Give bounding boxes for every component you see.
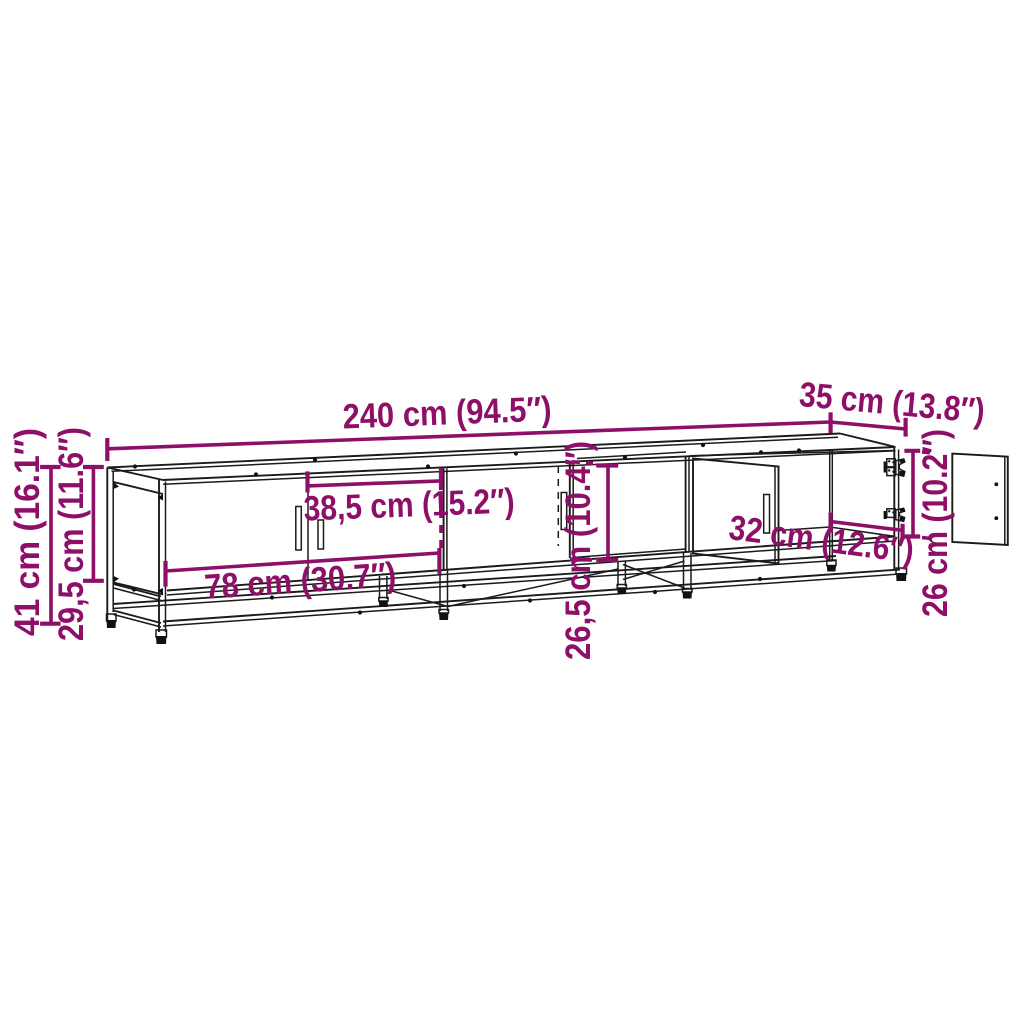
svg-text:240 cm (94.5″): 240 cm (94.5″) — [342, 390, 552, 437]
svg-text:38,5 cm (15.2″): 38,5 cm (15.2″) — [303, 481, 515, 528]
svg-text:26 cm (10.2″): 26 cm (10.2″) — [916, 429, 955, 617]
svg-text:41 cm (16.1″): 41 cm (16.1″) — [8, 428, 47, 636]
svg-text:26,5 cm (10.4″): 26,5 cm (10.4″) — [559, 441, 598, 660]
svg-text:29,5 cm (11.6″): 29,5 cm (11.6″) — [52, 427, 91, 641]
